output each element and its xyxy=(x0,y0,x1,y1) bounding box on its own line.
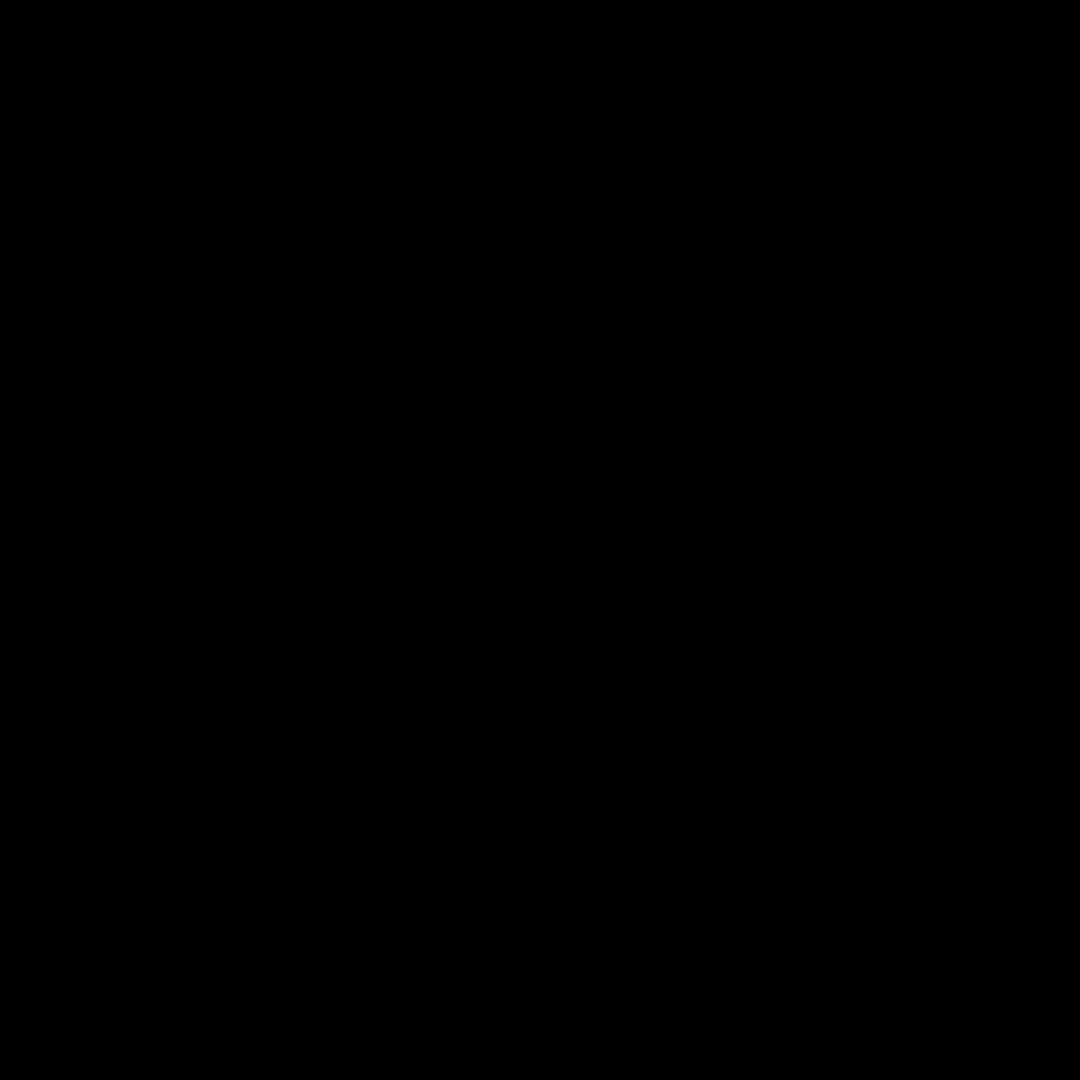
floorplan-render xyxy=(0,0,1080,1080)
apartment-floorplan xyxy=(0,0,1080,1080)
